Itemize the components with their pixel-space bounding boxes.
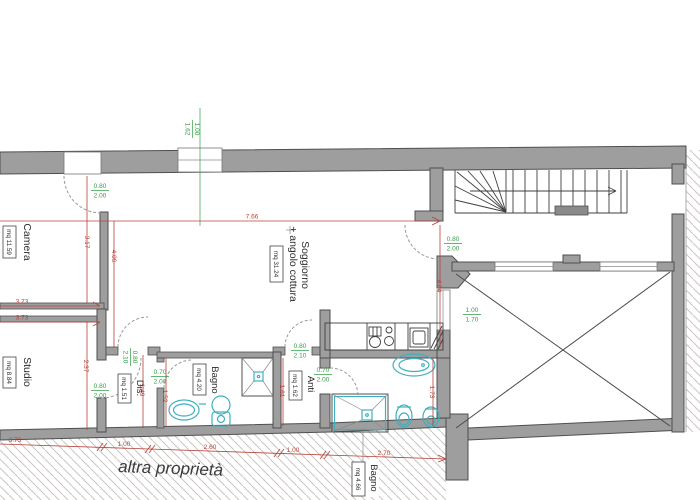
dim-soggiorno-left: 4.09 [110, 221, 117, 347]
svg-text:2.60: 2.60 [204, 444, 217, 451]
door-gap-camera [64, 152, 101, 174]
bagno1-door-arc [164, 360, 192, 388]
camera-label: Camera mq 11.59 [3, 223, 33, 261]
svg-text:1.00: 1.00 [466, 307, 479, 314]
svg-text:mq 31.24: mq 31.24 [272, 251, 279, 278]
svg-text:Camera: Camera [21, 223, 33, 261]
other-property-label: altra proprietà [118, 457, 223, 480]
svg-text:1.52: 1.52 [161, 390, 168, 403]
svg-text:1.00: 1.00 [118, 441, 131, 448]
svg-text:2.70: 2.70 [378, 450, 391, 457]
dis-door-size: 0.80 2.10 [122, 348, 139, 366]
window-symbol-void-right [600, 262, 657, 271]
floor-plan-canvas: 7.66 3.17 4.09 3.73 3.73 2.37 1.49 [0, 0, 700, 500]
svg-text:mq 4.20: mq 4.20 [195, 368, 202, 391]
dim-top-width: 7.66 [0, 214, 440, 235]
svg-text:+ angolo cottura: + angolo cottura [287, 226, 299, 302]
window-symbol-court [437, 290, 450, 330]
dis-door-arc [118, 317, 148, 347]
svg-text:4.09: 4.09 [110, 250, 117, 263]
svg-text:mq 11.59: mq 11.59 [5, 229, 12, 255]
sink-symbol [169, 400, 206, 420]
svg-text:Bagno: Bagno [368, 464, 379, 491]
svg-text:1.00: 1.00 [193, 123, 200, 136]
studio-door-size: 0.80 2.00 [91, 383, 109, 400]
svg-text:2.00: 2.00 [94, 393, 107, 400]
top-window-size: 1.00 1.62 [184, 120, 201, 138]
window-symbol-void-left [495, 262, 553, 271]
svg-text:4.04: 4.04 [435, 280, 442, 293]
court-window-size: 1.00 1.70 [463, 307, 481, 324]
svg-text:mq 8.84: mq 8.84 [5, 361, 12, 384]
door-arcs [64, 176, 439, 398]
svg-text:Anti: Anti [305, 376, 316, 392]
svg-text:2.00: 2.00 [154, 379, 167, 386]
toilet-symbol-1 [212, 396, 230, 426]
svg-text:0.80: 0.80 [447, 236, 460, 243]
svg-text:mq 1.51: mq 1.51 [120, 377, 127, 400]
entry-door-arc [405, 225, 439, 259]
svg-text:3.17: 3.17 [83, 236, 90, 249]
svg-text:1.70: 1.70 [466, 317, 479, 324]
staircase [455, 170, 627, 215]
stair-direction-arrow [470, 187, 616, 195]
shower-symbol-1 [242, 358, 273, 396]
svg-text:Studio: Studio [21, 357, 33, 387]
dim-camera-height: 3.17 [83, 176, 90, 303]
svg-text:0.80: 0.80 [94, 183, 107, 190]
dim-studio-height: 2.37 [82, 322, 89, 430]
soggiorno-label: Soggiorno + angolo cottura mq 31.24 [270, 226, 311, 302]
svg-text:Bagno: Bagno [209, 366, 220, 393]
svg-text:2.00: 2.00 [94, 193, 107, 200]
void-room [456, 272, 670, 428]
svg-text:2.10: 2.10 [294, 353, 307, 360]
right-building-hatch [686, 150, 700, 432]
dis-label: Dis. mq 1.51 [118, 374, 145, 403]
svg-text:Soggiorno: Soggiorno [299, 241, 311, 289]
svg-text:2.00: 2.00 [447, 246, 460, 253]
svg-text:3.73: 3.73 [16, 299, 29, 306]
bagno1-label: Bagno mq 4.20 [193, 364, 220, 395]
svg-text:mq 4.66: mq 4.66 [354, 468, 361, 491]
anti-label: Anti mq 1.62 [289, 371, 316, 400]
svg-text:2.37: 2.37 [82, 360, 89, 373]
svg-text:0.80: 0.80 [294, 343, 307, 350]
camera-door-size: 0.80 2.00 [91, 183, 109, 200]
svg-text:0.70: 0.70 [317, 367, 330, 374]
kitchen-block [325, 323, 443, 350]
bagno2-door-arc [330, 368, 358, 396]
floor-plan-page: 7.66 3.17 4.09 3.73 3.73 2.37 1.49 [0, 0, 700, 500]
bathroom2-fixtures [332, 354, 439, 432]
stove-symbol [369, 327, 394, 348]
anti-door-size: 0.80 2.10 [291, 343, 309, 360]
svg-text:0.80: 0.80 [131, 351, 138, 364]
bathroom1-fixtures [169, 358, 273, 426]
svg-text:2.10: 2.10 [122, 351, 129, 364]
svg-text:1.62: 1.62 [184, 123, 191, 136]
svg-text:3.73: 3.73 [16, 315, 29, 322]
svg-text:1.61: 1.61 [278, 385, 285, 398]
svg-text:0.70: 0.70 [154, 369, 167, 376]
svg-text:0.80: 0.80 [94, 383, 107, 390]
svg-text:3.73: 3.73 [9, 437, 22, 444]
entry-door-size: 0.80 2.00 [444, 236, 462, 253]
svg-text:1.73: 1.73 [428, 386, 435, 399]
svg-text:Dis.: Dis. [134, 380, 145, 396]
svg-text:mq 1.62: mq 1.62 [291, 374, 298, 397]
svg-text:7.66: 7.66 [246, 214, 259, 221]
svg-text:1.00: 1.00 [287, 447, 300, 454]
studio-label: Studio mq 8.84 [3, 357, 33, 388]
svg-text:2.00: 2.00 [317, 377, 330, 384]
